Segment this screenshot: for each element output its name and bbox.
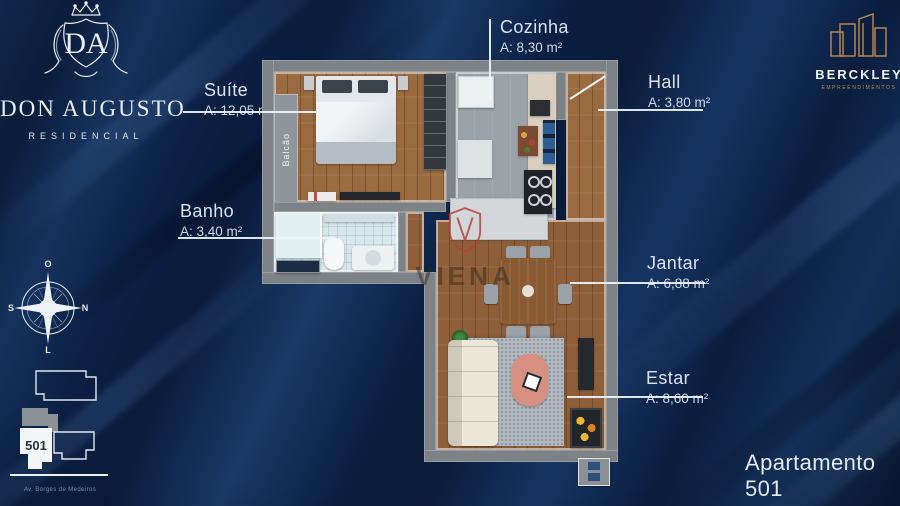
tv-panel [578,338,594,390]
compass-icon: O N L S [6,258,90,354]
crest-icon: DA [30,0,142,94]
sink-bowl [365,250,381,266]
leader-line-estar [567,396,703,398]
crest-monogram: DA [64,27,108,60]
street-label: Av. Borges de Medeiros [8,487,112,493]
room-label-jantar: Jantar A: 6,88 m² [647,253,709,291]
poster-background: DA DON AUGUSTO RESIDENCIAL BERCKLEY EMPR… [0,0,900,506]
coffee-table-books [522,372,543,393]
banho-title: Banho [180,201,242,222]
compass-letter-left: S [8,303,14,313]
leader-line-banho [178,237,335,239]
burner [540,194,552,206]
viena-watermark: VIENA [400,206,530,292]
compass-letter-bottom: L [45,345,51,354]
don-augusto-logo: DA DON AUGUSTO RESIDENCIAL [0,0,172,141]
jantar-title: Jantar [647,253,709,274]
balcony-label: Balcão [281,133,291,167]
estar-title: Estar [646,368,708,389]
compass-letter-right: N [82,303,89,313]
suite-tv-console [340,192,400,200]
berckley-name: BERCKLEY [803,67,900,82]
berckley-subtitle: EMPREENDIMENTOS [803,85,900,91]
don-augusto-title: DON AUGUSTO [0,96,172,122]
wall-left-lower [424,272,436,462]
cozinha-area: A: 8,30 m² [500,40,569,56]
kitchen-shelf-decor [518,126,538,156]
hall-area: A: 3,80 m² [648,95,710,111]
berckley-buildings-icon [828,12,890,58]
burner [528,176,540,188]
leader-line-suite [183,111,330,113]
compass-letter-top: O [44,259,51,269]
cozinha-title: Cozinha [500,17,569,38]
bathroom-sink [352,246,394,270]
hall-floor [566,72,606,220]
don-augusto-subtitle: RESIDENCIAL [0,131,172,141]
burner [528,194,540,206]
wall-top [262,60,618,72]
sofa [448,340,498,446]
keyplan-upper-unit-outline [36,371,96,400]
flower-planter [570,408,602,448]
estar-area: A: 8,60 m² [646,391,708,407]
shower [276,214,322,258]
wall-left-upper [262,60,274,284]
wall-kitchen-hall [556,72,566,120]
dining-chair [558,284,572,304]
room-label-estar: Estar A: 8,60 m² [646,368,708,406]
blue-cabinets [543,120,555,164]
building-keyplan: 501 [8,366,112,480]
dresser [308,192,336,201]
pillow [322,80,352,93]
ac-vent [588,473,600,481]
coffee-table [512,354,548,406]
wall-suite-kitchen [446,72,456,202]
leader-line-jantar [570,282,705,284]
bed [316,76,396,164]
wall-right [606,60,618,462]
apartment-summary: Apartamento 501 A: 49,22 m² [745,450,900,506]
apartment-title: Apartamento 501 [745,450,900,502]
nightstand-right [398,76,408,90]
kitchen-cabinet [458,140,492,178]
nightstand-left [304,76,314,90]
keyplan-unit-number: 501 [25,438,47,453]
wardrobe [424,74,446,170]
keyplan-lower-unit-outline [54,432,94,459]
ac-unit-box [578,458,610,486]
toilet [324,238,344,270]
bed-throw [316,142,396,164]
ac-vent [588,462,600,470]
watermark-shield-icon [446,206,484,254]
burner [540,176,552,188]
bathroom-counter [324,214,394,222]
room-label-banho: Banho A: 3,40 m² [180,201,242,239]
leader-line-hall [598,109,703,111]
room-label-hall: Hall A: 3,80 m² [648,72,710,110]
berckley-logo: BERCKLEY EMPREENDIMENTOS [803,12,900,91]
room-label-cozinha: Cozinha A: 8,30 m² [500,17,569,55]
bath-mat [276,260,320,273]
coffee-machine [530,100,550,116]
watermark-text: VIENA [400,261,530,292]
pillow [358,80,388,93]
hall-title: Hall [648,72,710,93]
leader-line-cozinha [489,19,491,99]
